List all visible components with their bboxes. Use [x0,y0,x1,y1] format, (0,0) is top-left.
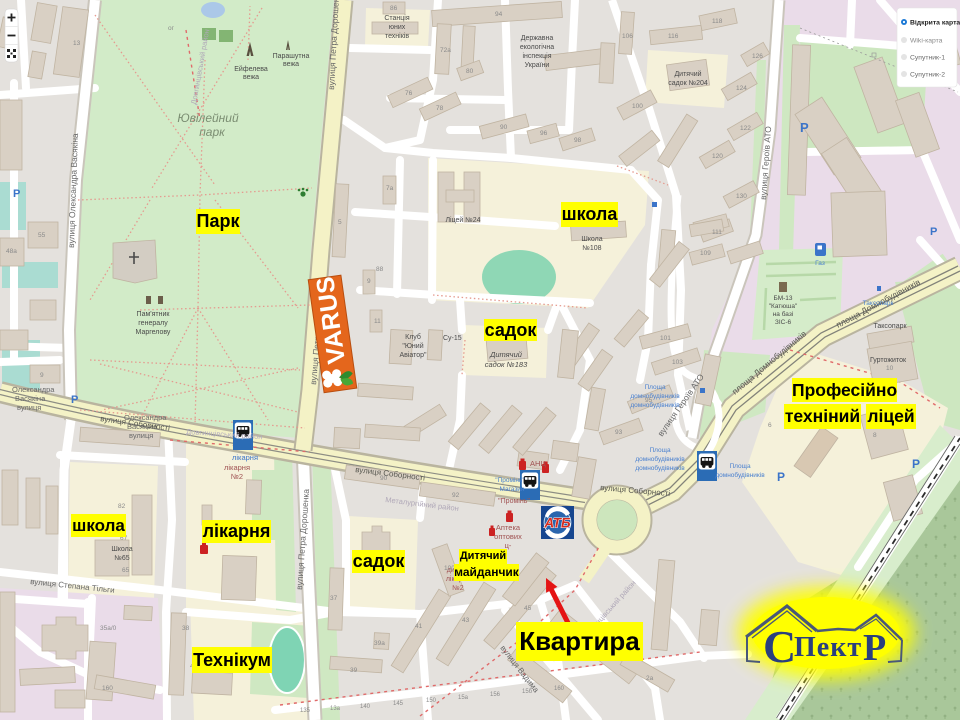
svg-text:120: 120 [712,153,723,160]
svg-text:Дитячий: Дитячий [489,350,523,359]
svg-text:Площа: Площа [644,384,666,391]
svg-text:ЗІС-6: ЗІС-6 [775,319,792,326]
svg-text:Маргелову: Маргелову [136,329,171,336]
svg-text:екологічна: екологічна [520,43,554,51]
svg-text:№2: №2 [231,472,243,481]
svg-text:вулиця: вулиця [129,431,153,440]
svg-text:Відкрита карта: Відкрита карта [910,19,960,27]
svg-text:7а: 7а [386,185,394,192]
svg-text:Дитячий: Дитячий [674,70,701,78]
svg-text:P: P [930,226,937,238]
svg-text:100: 100 [632,103,643,110]
svg-text:Супутник-1: Супутник-1 [910,55,945,62]
svg-text:5: 5 [338,219,342,226]
svg-text:№65: №65 [114,555,129,562]
svg-text:96: 96 [540,130,548,137]
svg-text:P: P [777,470,785,484]
svg-text:93: 93 [615,429,623,436]
svg-text:82: 82 [118,503,126,510]
svg-text:Школа: Школа [581,236,602,243]
svg-text:"Катюша": "Катюша" [769,303,798,310]
svg-text:"Промінь": "Промінь" [498,497,530,505]
svg-text:вежа: вежа [243,74,259,81]
svg-text:P: P [912,457,920,471]
svg-text:№2: №2 [452,585,464,592]
svg-text:150: 150 [426,698,437,704]
svg-text:140: 140 [360,704,371,710]
svg-text:Авіатор": Авіатор" [399,351,427,359]
svg-text:86: 86 [390,5,398,12]
svg-text:118: 118 [712,18,723,25]
svg-text:домнобудівників: домнобудівників [715,471,765,479]
svg-text:№108: №108 [582,245,601,252]
svg-text:41: 41 [415,623,423,630]
svg-text:2а: 2а [646,675,654,682]
svg-text:Гуртожиток: Гуртожиток [870,357,907,364]
svg-text:"Промінь": "Промінь" [495,476,525,484]
svg-text:9: 9 [367,278,371,285]
svg-text:домнобудівників: домнобудівників [630,401,680,409]
svg-text:Державна: Державна [521,35,554,42]
svg-text:юних: юних [389,24,406,31]
svg-text:лікарня: лікарня [232,453,258,462]
svg-text:Су-15: Су-15 [443,335,462,342]
svg-text:72а: 72а [440,47,451,54]
svg-text:Площа: Площа [649,447,671,454]
svg-text:43: 43 [462,617,470,624]
svg-text:парк: парк [199,125,226,139]
svg-text:Пект: Пект [794,632,862,663]
svg-text:P: P [71,394,78,406]
svg-text:АНЦ: АНЦ [530,459,546,468]
svg-text:10: 10 [886,365,894,372]
svg-text:122: 122 [740,125,751,132]
svg-text:111: 111 [712,229,722,236]
svg-text:садок №204: садок №204 [668,80,708,87]
svg-text:Ейфелева: Ейфелева [234,65,268,73]
svg-text:оптових: оптових [494,532,522,541]
svg-text:Васякіна: Васякіна [15,394,46,403]
svg-text:Таксопарк: Таксопарк [873,323,907,330]
svg-text:35а/0: 35а/0 [100,625,117,632]
svg-text:145: 145 [393,701,404,707]
svg-text:124: 124 [736,85,747,92]
svg-text:Пам'ятник: Пам'ятник [137,311,171,318]
svg-text:С: С [763,621,796,672]
svg-text:вежа: вежа [283,61,299,68]
svg-text:БМ-13: БМ-13 [773,295,792,302]
svg-text:39: 39 [350,667,358,674]
svg-text:інспекція: інспекція [522,52,551,60]
svg-text:78: 78 [436,105,444,112]
svg-text:лікарня: лікарня [224,463,250,472]
svg-text:13а: 13а [330,706,341,712]
svg-text:Олександра: Олександра [12,385,55,394]
svg-text:Площа: Площа [729,463,751,470]
svg-text:домнобудівників: домнобудівників [635,464,685,472]
svg-text:садок №183: садок №183 [485,360,528,369]
svg-text:98: 98 [574,137,582,144]
svg-text:109: 109 [700,250,711,257]
svg-text:94: 94 [495,11,503,18]
svg-text:Таксопарк: Таксопарк [863,300,894,307]
svg-text:135: 135 [300,708,311,714]
svg-text:103: 103 [672,359,683,366]
svg-text:55: 55 [38,232,46,239]
svg-text:вулиця: вулиця [17,403,41,412]
svg-text:Супутник-2: Супутник-2 [910,72,945,79]
svg-text:15б: 15б [522,689,533,695]
svg-text:15а: 15а [458,695,469,701]
svg-text:106: 106 [622,33,633,40]
svg-text:80: 80 [466,68,474,75]
svg-text:126: 126 [752,53,763,60]
svg-text:45: 45 [524,605,532,612]
svg-text:160: 160 [554,686,565,692]
svg-text:76: 76 [405,90,413,97]
svg-text:ог: ог [168,25,175,32]
svg-text:65: 65 [122,567,130,574]
svg-text:160: 160 [102,685,113,692]
svg-text:11: 11 [374,318,381,325]
svg-text:90: 90 [500,124,508,131]
svg-text:Магазин: Магазин [499,486,524,493]
svg-text:P: P [13,188,20,200]
svg-text:13: 13 [73,40,81,47]
svg-text:генералу: генералу [138,320,168,327]
svg-text:Аптека: Аптека [496,523,521,532]
svg-text:Р: Р [863,627,886,669]
svg-text:Школа: Школа [111,546,132,553]
svg-text:156: 156 [490,692,501,698]
svg-text:Клуб: Клуб [405,333,421,341]
svg-text:техніків: техніків [385,32,409,40]
svg-text:"Юний: "Юний [402,342,423,350]
svg-text:90: 90 [380,475,388,482]
svg-text:домнобудівників: домнобудівників [630,392,680,400]
svg-text:8: 8 [873,432,877,439]
svg-text:6: 6 [768,422,772,429]
svg-text:9: 9 [40,372,44,379]
svg-text:АТБ: АТБ [543,516,571,531]
svg-text:Ювілейний: Ювілейний [177,111,239,125]
svg-text:Ліцей №24: Ліцей №24 [445,216,480,224]
svg-text:130: 130 [736,193,747,200]
svg-text:39а: 39а [374,640,385,647]
svg-text:домнобудівників: домнобудівників [635,455,685,463]
svg-text:92: 92 [452,492,460,499]
svg-text:37: 37 [330,595,338,602]
svg-text:P: P [800,120,809,135]
svg-text:38: 38 [182,625,190,632]
svg-text:95: 95 [645,397,653,404]
svg-text:48а: 48а [6,248,17,255]
svg-text:116: 116 [668,33,679,40]
svg-text:Парашутна: Парашутна [273,53,310,60]
svg-text:України: України [525,62,550,69]
svg-text:Wiki-карта: Wiki-карта [910,38,943,45]
svg-text:88: 88 [376,266,384,273]
svg-text:Станція: Станція [384,14,410,22]
svg-text:на базі: на базі [773,310,794,318]
svg-text:101: 101 [660,335,671,342]
svg-text:Газ: Газ [815,260,825,267]
